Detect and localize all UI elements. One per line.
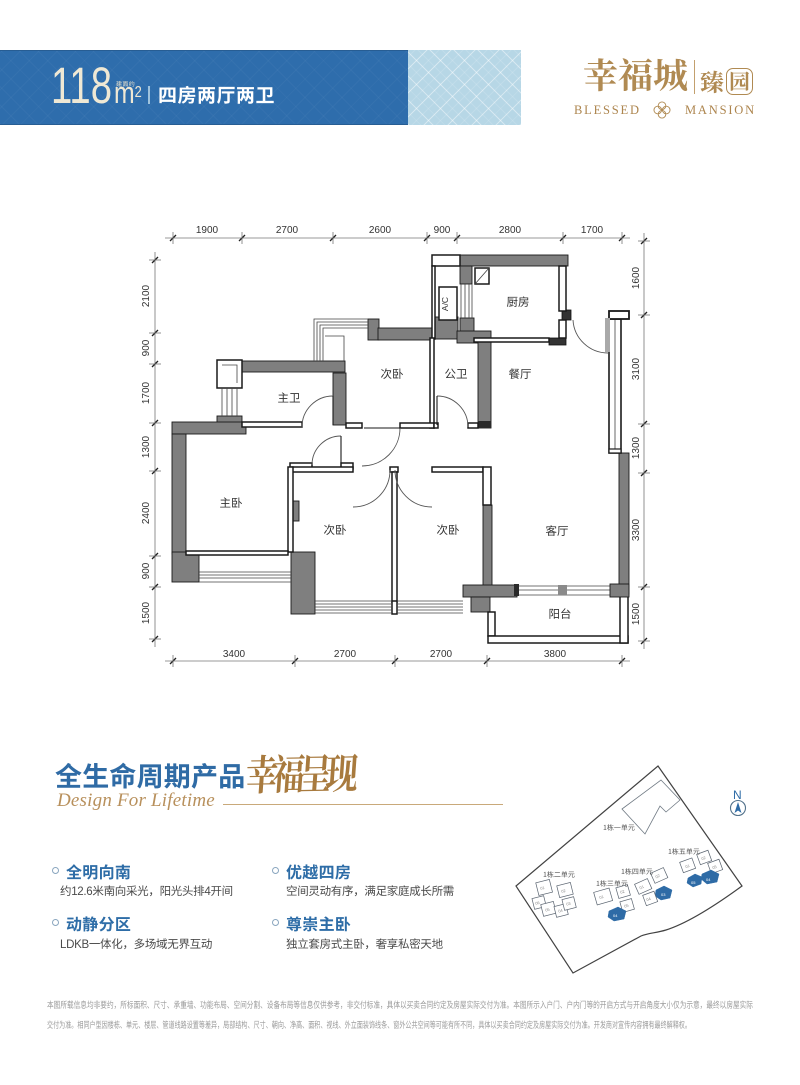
svg-text:3100: 3100	[631, 357, 642, 380]
svg-text:1700: 1700	[141, 381, 152, 404]
svg-text:N: N	[733, 788, 742, 802]
svg-text:餐厅: 餐厅	[509, 366, 532, 382]
svg-text:A/C: A/C	[440, 297, 450, 311]
svg-text:2400: 2400	[141, 501, 152, 524]
svg-text:2700: 2700	[334, 649, 357, 660]
svg-text:客厅: 客厅	[546, 523, 569, 539]
svg-text:1500: 1500	[631, 602, 642, 625]
svg-text:次卧: 次卧	[324, 522, 347, 538]
svg-text:厨房: 厨房	[507, 294, 530, 310]
svg-text:主卧: 主卧	[220, 495, 243, 511]
svg-text:900: 900	[434, 225, 451, 236]
svg-text:2600: 2600	[369, 225, 392, 236]
svg-text:1栋二单元: 1栋二单元	[543, 870, 575, 880]
svg-text:05: 05	[691, 880, 696, 885]
svg-text:3800: 3800	[544, 649, 567, 660]
svg-text:1栋四单元: 1栋四单元	[621, 867, 653, 877]
svg-text:公卫: 公卫	[445, 366, 468, 382]
svg-text:900: 900	[141, 562, 152, 579]
svg-text:1700: 1700	[581, 225, 604, 236]
svg-text:2800: 2800	[499, 225, 522, 236]
svg-text:1300: 1300	[141, 435, 152, 458]
svg-text:1900: 1900	[196, 225, 219, 236]
svg-text:主卫: 主卫	[278, 390, 301, 406]
svg-text:1500: 1500	[141, 601, 152, 624]
svg-text:次卧: 次卧	[381, 366, 404, 382]
svg-text:3400: 3400	[223, 649, 246, 660]
svg-text:2700: 2700	[430, 649, 453, 660]
svg-text:04: 04	[613, 913, 618, 918]
svg-text:2100: 2100	[141, 284, 152, 307]
svg-text:1栋一单元: 1栋一单元	[603, 823, 635, 833]
svg-text:1栋三单元: 1栋三单元	[596, 879, 628, 889]
svg-text:1600: 1600	[631, 266, 642, 289]
svg-text:阳台: 阳台	[549, 606, 572, 622]
svg-text:3300: 3300	[631, 518, 642, 541]
svg-text:1300: 1300	[631, 436, 642, 459]
svg-text:1栋五单元: 1栋五单元	[668, 847, 700, 857]
svg-text:次卧: 次卧	[437, 522, 460, 538]
svg-text:2700: 2700	[276, 225, 299, 236]
svg-text:03: 03	[661, 892, 666, 897]
svg-text:900: 900	[141, 339, 152, 356]
svg-text:04: 04	[706, 877, 711, 882]
